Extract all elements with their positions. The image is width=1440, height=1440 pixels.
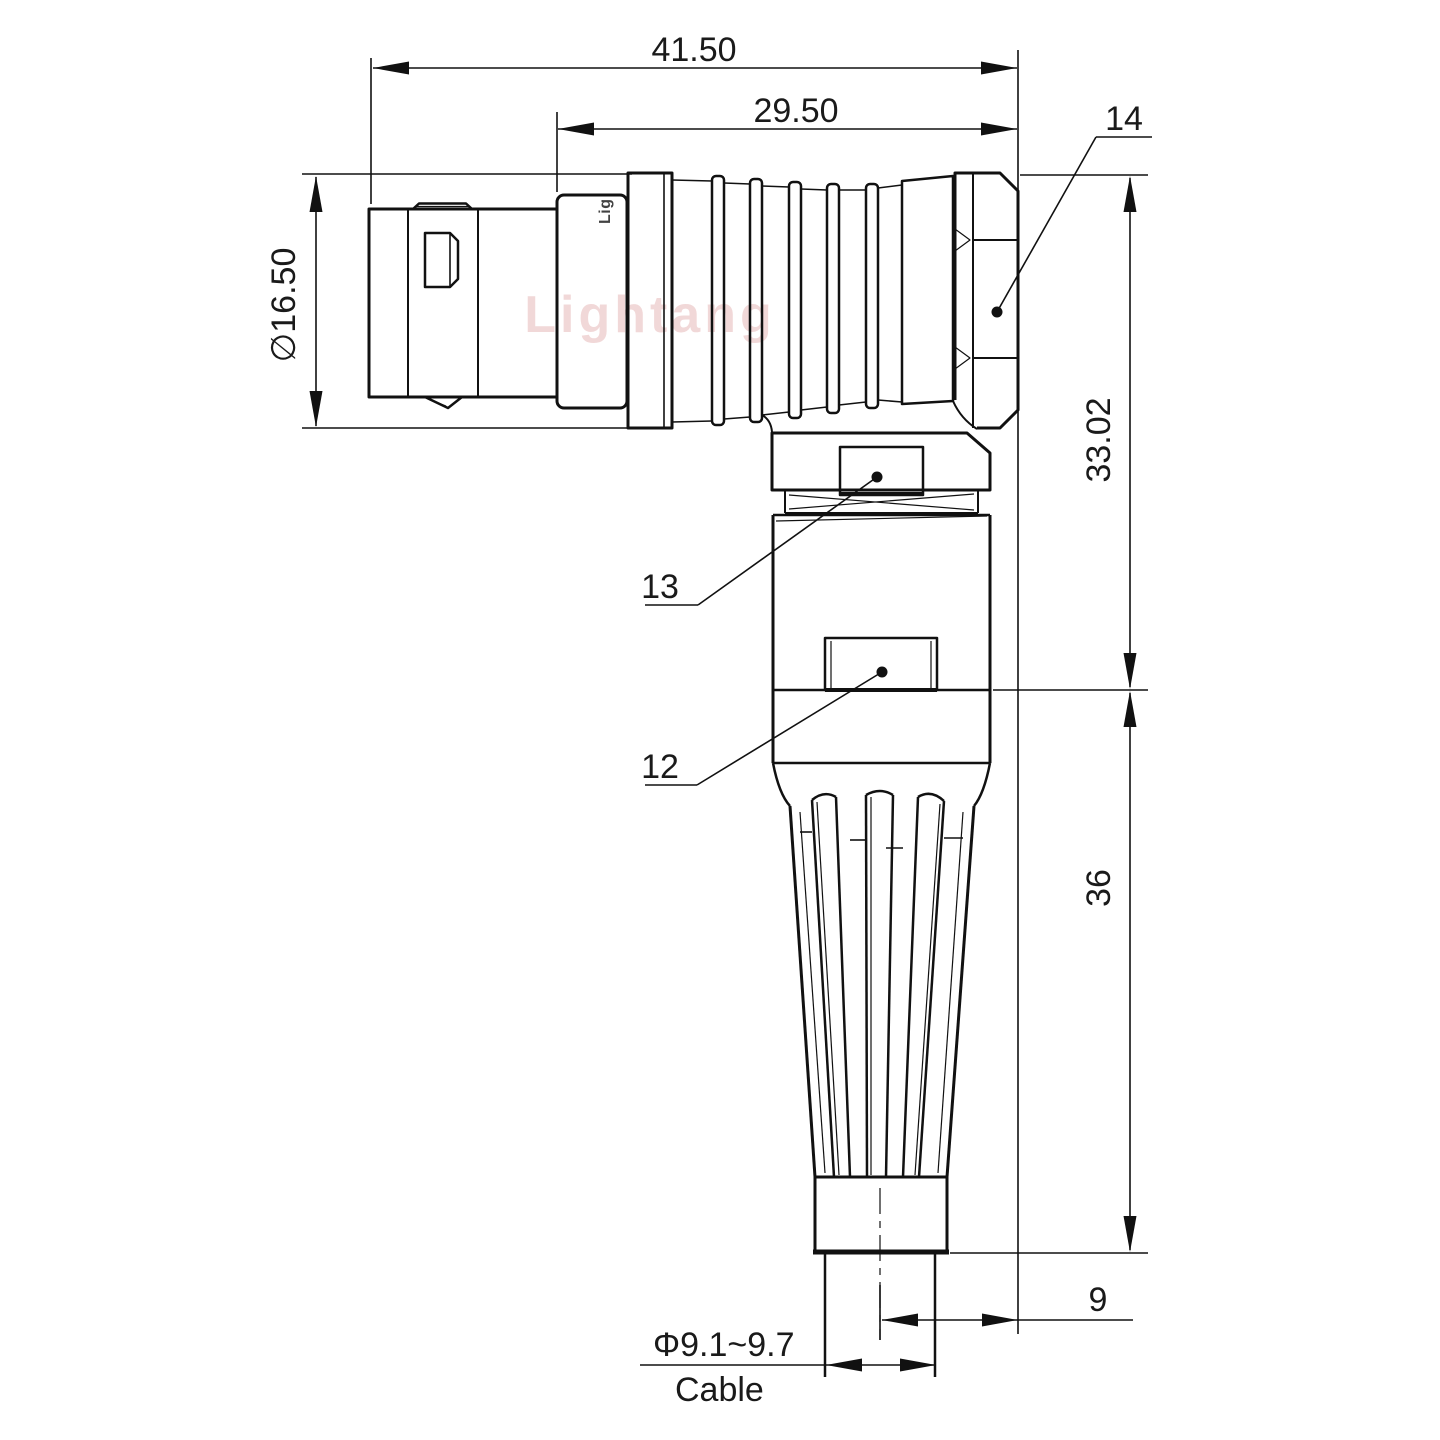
- dim-shell-diameter-value: ∅16.50: [265, 248, 303, 363]
- strain-relief-boot: [773, 763, 990, 1252]
- connector-drawing: Lightang 41.50 29.50 ∅16.50 33.02: [0, 0, 1440, 1440]
- dim-height-upper-value: 33.02: [1080, 397, 1118, 482]
- boot-collar: [815, 1177, 947, 1252]
- callout-13-label: 13: [641, 568, 679, 606]
- dim-overall-length-value: 41.50: [651, 31, 736, 69]
- dimension-overall-length: 41.50: [373, 31, 1017, 75]
- dimension-shell-diameter: ∅16.50: [265, 176, 323, 427]
- dim-cable-diameter-value: Φ9.1~9.7: [653, 1326, 795, 1364]
- cable: [825, 1188, 935, 1377]
- dim-cable-offset-value: 9: [1089, 1281, 1108, 1319]
- dimension-cable-offset: 9: [882, 1281, 1133, 1327]
- callout-14-label: 14: [1105, 100, 1143, 138]
- key-slot: [425, 233, 458, 287]
- hex-nut: [955, 173, 1018, 428]
- dim-rear-length-value: 29.50: [753, 92, 838, 130]
- dimension-rear-length: 29.50: [558, 92, 1017, 136]
- dimension-height-upper: 33.02: [1080, 176, 1137, 689]
- callout-13: 13: [641, 472, 882, 607]
- dimension-cable-diameter: Φ9.1~9.7 Cable: [640, 1326, 936, 1409]
- dim-height-lower-value: 36: [1080, 869, 1118, 907]
- dimension-height-lower: 36: [1080, 691, 1137, 1252]
- elbow-housing: [772, 433, 990, 763]
- watermark-text: Lightang: [524, 286, 776, 344]
- sleeve-logo-text: Lig: [597, 199, 614, 225]
- latch-window-lower: [825, 638, 937, 690]
- gland-nut: [772, 433, 990, 490]
- cable-label: Cable: [675, 1371, 764, 1409]
- technical-drawing-page: Lightang 41.50 29.50 ∅16.50 33.02: [0, 0, 1440, 1440]
- callout-12-label: 12: [641, 748, 679, 786]
- latch-window-upper: [840, 447, 923, 495]
- callout-12: 12: [641, 667, 887, 787]
